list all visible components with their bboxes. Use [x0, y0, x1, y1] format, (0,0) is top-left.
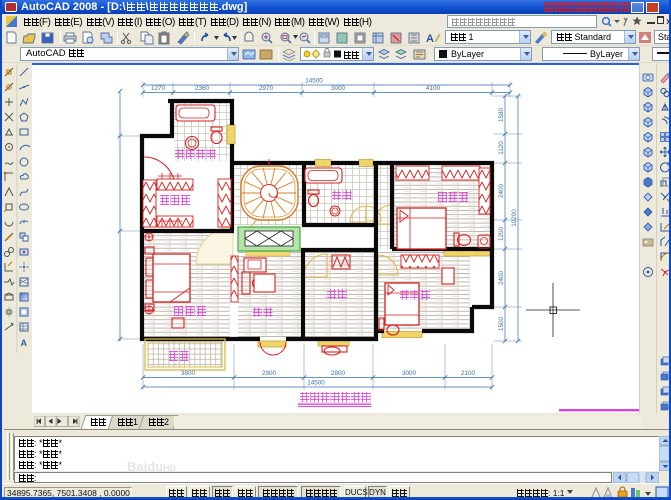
svg-text:1500: 1500 [498, 317, 505, 332]
svg-text:2900: 2900 [262, 370, 277, 377]
svg-text:3000: 3000 [331, 85, 346, 92]
svg-text:A: A [426, 33, 434, 45]
svg-text:3000: 3000 [402, 370, 417, 377]
svg-text:3800: 3800 [181, 370, 196, 377]
svg-text:14500: 14500 [307, 380, 325, 387]
svg-text:4100: 4100 [426, 85, 441, 92]
svg-text:2400: 2400 [498, 184, 505, 199]
svg-text:1580: 1580 [498, 108, 505, 123]
svg-text:2970: 2970 [259, 85, 274, 92]
svg-text:2800: 2800 [331, 370, 346, 377]
svg-text:1200: 1200 [498, 227, 505, 242]
svg-text:10200: 10200 [511, 209, 518, 227]
svg-text:14500: 14500 [305, 78, 323, 85]
svg-text:2360: 2360 [195, 85, 210, 92]
svg-text:2100: 2100 [461, 370, 476, 377]
svg-text:A: A [21, 338, 28, 348]
svg-text:1270: 1270 [151, 85, 166, 92]
svg-text:2400: 2400 [498, 271, 505, 286]
svg-text:1120: 1120 [498, 141, 505, 155]
